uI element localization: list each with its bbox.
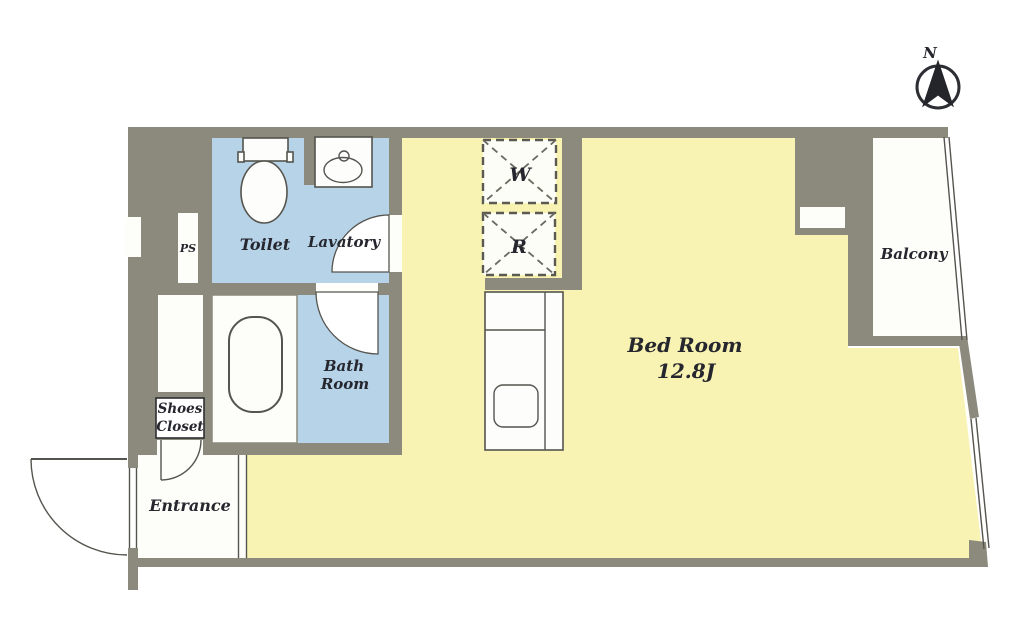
lavatory-sink [315, 137, 372, 187]
shoes-closet-door-opening [157, 440, 203, 455]
shoes-closet-label-line2: Closet [156, 419, 204, 435]
refrigerator-label: R [510, 236, 527, 258]
bedroom-size-label: 12.8J [657, 359, 717, 383]
wall-entrance-left-post [128, 548, 138, 590]
wall-center-horizontal [485, 278, 582, 290]
wall-below-bath [205, 443, 402, 455]
toilet-tank-tab-left [238, 152, 244, 162]
toilet-bowl [241, 161, 287, 223]
wall-lavatory-right-upper [389, 127, 402, 215]
bedroom-upper-right-area [795, 235, 848, 348]
bedroom-label: Bed Room [626, 333, 742, 357]
washer-placement: W [483, 140, 556, 203]
left-wall-window [125, 217, 141, 257]
shoes-closet-label-line1: Shoes [158, 401, 203, 417]
compass: N [917, 44, 959, 108]
wall-balcony-bottom [848, 336, 966, 346]
wall-bottom [128, 558, 986, 567]
closet-niche [158, 295, 203, 392]
balcony-floor [873, 137, 962, 338]
bedroom-lower-right-area [795, 348, 983, 558]
compass-north-label: N [922, 44, 938, 62]
bedroom-balcony-window [800, 207, 845, 228]
toilet-tank [243, 138, 288, 161]
entrance-step [238, 450, 247, 558]
refrigerator-placement: R [483, 213, 555, 275]
wall-center-vertical [562, 127, 582, 290]
bath-room-label-line2: Room [320, 375, 369, 393]
wall-balcony-left [848, 235, 873, 342]
lavatory-door-opening [389, 215, 402, 272]
floor-plan-svg: W R Toilet Lavatory Bath Room [0, 0, 1024, 641]
entrance-door-swing [31, 459, 127, 555]
bath-room-label-line1: Bath [323, 357, 364, 375]
wall-entrance-left-top [128, 443, 138, 468]
entrance-label: Entrance [148, 496, 231, 515]
wall-bath-right [389, 272, 402, 455]
toilet-label: Toilet [240, 235, 291, 254]
toilet-tank-tab-right [287, 152, 293, 162]
wall-bottom-right-corner [969, 540, 988, 567]
floor-plan-page: W R Toilet Lavatory Bath Room [0, 0, 1024, 641]
washer-label: W [509, 164, 532, 186]
pipe-space-label: PS [179, 242, 196, 255]
bedroom-lower-left-area [247, 455, 402, 558]
lavatory-sink-counter [315, 137, 372, 187]
balcony-label: Balcony [880, 245, 949, 263]
kitchen-counter [485, 292, 563, 450]
lavatory-label: Lavatory [307, 233, 382, 251]
